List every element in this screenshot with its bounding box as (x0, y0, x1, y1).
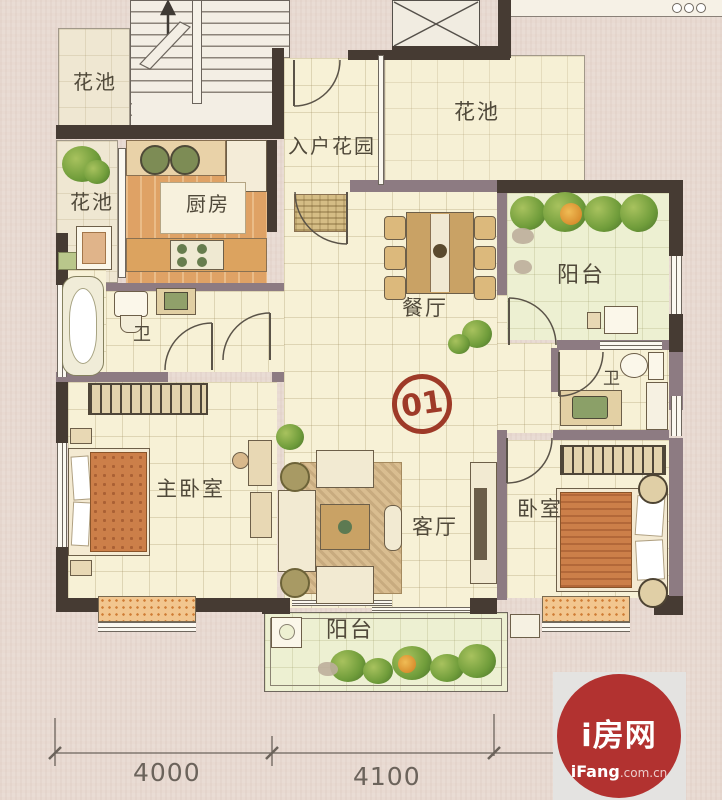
low-wall (378, 55, 384, 185)
room-label-dining: 餐厅 (402, 298, 448, 319)
wall-light (350, 180, 497, 192)
window (671, 256, 682, 314)
stair-railing (192, 0, 202, 104)
wall (348, 50, 394, 60)
elevator (392, 0, 480, 48)
wall (392, 46, 510, 60)
plant (363, 658, 393, 684)
stove-burner (177, 257, 187, 267)
plant (510, 196, 546, 230)
dimension-right: 4100 (353, 762, 421, 791)
dining-chair (474, 246, 496, 270)
room-label-bedroom: 卧室 (517, 499, 563, 520)
floor-plan: 花池 花池 花池 入户花园 厨房 餐厅 阳台 卫 卫 主卧室 客厅 卧室 阳台 … (0, 0, 722, 800)
side-table (280, 462, 310, 492)
ifang-logo-brand: iFang (571, 762, 620, 781)
shower (646, 382, 668, 430)
toilet-bowl (620, 353, 648, 378)
room-label-flower-pond: 花池 (73, 72, 117, 92)
unit-number: 01 (399, 384, 445, 424)
plant (448, 334, 470, 354)
wash-basin-bowl (164, 292, 188, 310)
room-label-kitchen: 厨房 (186, 194, 230, 214)
window (98, 622, 196, 632)
window (600, 341, 662, 350)
dining-centerpiece (433, 244, 447, 258)
kitchen-sink-bowl (140, 145, 170, 175)
ifang-logo-circle: i房网 iFang.com.cn (557, 674, 681, 798)
balcony-desk (604, 306, 638, 334)
bedside-lamp (638, 474, 668, 504)
tv (474, 488, 487, 560)
room-label-balcony: 阳台 (557, 265, 605, 287)
flower-box-window (98, 596, 196, 622)
dining-chair (384, 216, 406, 240)
chaise (384, 505, 402, 551)
wall (470, 598, 497, 614)
entry-garden-floor (284, 58, 384, 182)
toilet-tank (648, 352, 664, 380)
wardrobe (88, 383, 208, 415)
dresser (248, 440, 272, 486)
wall (498, 0, 511, 58)
nightstand (70, 428, 92, 444)
master-bed-blanket (90, 452, 147, 552)
bathtub-basin (69, 288, 97, 364)
plant (276, 424, 304, 450)
desk (510, 614, 540, 638)
room-label-bath: 卫 (133, 326, 153, 344)
dining-chair (474, 216, 496, 240)
wall (272, 48, 284, 139)
flower (560, 203, 582, 225)
bed-blanket (560, 492, 632, 588)
dining-chair (384, 246, 406, 270)
entry-rug (294, 194, 348, 232)
plant (584, 196, 624, 232)
room-label-bath: 卫 (603, 371, 622, 388)
sofa-bench (316, 566, 374, 604)
flower-box-window (542, 596, 630, 622)
low-wall (118, 148, 126, 278)
ifang-logo-site: iFang.com.cn (557, 762, 681, 781)
wall-light (272, 372, 284, 382)
wall-light (497, 430, 507, 600)
wall (669, 180, 683, 256)
stove-burner (197, 244, 207, 254)
planter-soil (82, 232, 106, 264)
stool (232, 452, 249, 469)
wall (497, 180, 669, 193)
dimension-left: 4000 (133, 758, 201, 787)
room-label-balcony: 阳台 (326, 620, 374, 642)
nightstand (70, 560, 92, 576)
ifang-watermark: i房网 iFang.com.cn (553, 672, 686, 800)
pillow (71, 502, 91, 547)
hall-floor-2 (497, 343, 559, 433)
pillow (70, 455, 91, 500)
room-label-living: 客厅 (412, 517, 458, 538)
side-table (280, 568, 310, 598)
room-label-entry-garden: 入户花园 (288, 136, 376, 156)
wall (56, 547, 68, 605)
dimension-lines (49, 714, 553, 766)
cabinet (250, 492, 272, 538)
wardrobe (560, 445, 666, 475)
wall-light (669, 438, 683, 596)
vanity-sink (572, 396, 608, 419)
room-label-flower-pond: 花池 (454, 102, 500, 123)
washing-machine-door (279, 624, 295, 640)
rock (514, 260, 532, 274)
stove-burner (197, 257, 207, 267)
plant (620, 194, 658, 232)
ifang-logo-title: i房网 (557, 710, 681, 755)
sliding-door (372, 607, 470, 613)
room-label-flower-pond: 花池 (70, 192, 114, 212)
wall (669, 314, 683, 352)
room-label-master-bedroom: 主卧室 (156, 479, 225, 500)
stove-burner (177, 244, 187, 254)
wall-light (497, 193, 507, 295)
pedestal-sink (114, 291, 148, 317)
dining-chair (474, 276, 496, 300)
wall-light (553, 430, 669, 440)
neighbor-sink-dot (684, 3, 694, 13)
hall-floor (497, 295, 507, 345)
window (671, 396, 682, 436)
flower (398, 655, 416, 673)
neighbor-sink-dot (672, 3, 682, 13)
wall (56, 377, 68, 443)
window (542, 622, 630, 632)
neighbor-sink-dot (696, 3, 706, 13)
bedside-lamp (638, 578, 668, 608)
wall (196, 598, 262, 612)
sofa-long (278, 490, 316, 572)
plant (84, 160, 110, 184)
kitchen-sink-bowl (170, 145, 200, 175)
rock (318, 662, 338, 676)
ifang-logo-domain: .com.cn (620, 766, 667, 780)
rock (512, 228, 534, 244)
pillow (635, 539, 665, 580)
window (57, 443, 67, 547)
wall-light (551, 348, 559, 392)
balcony-chair (587, 312, 601, 329)
wall (267, 140, 277, 232)
wall (262, 598, 290, 614)
sofa-bench (316, 450, 374, 488)
coffee-table-decor (338, 520, 352, 534)
wall (56, 125, 272, 139)
plant (458, 644, 496, 678)
